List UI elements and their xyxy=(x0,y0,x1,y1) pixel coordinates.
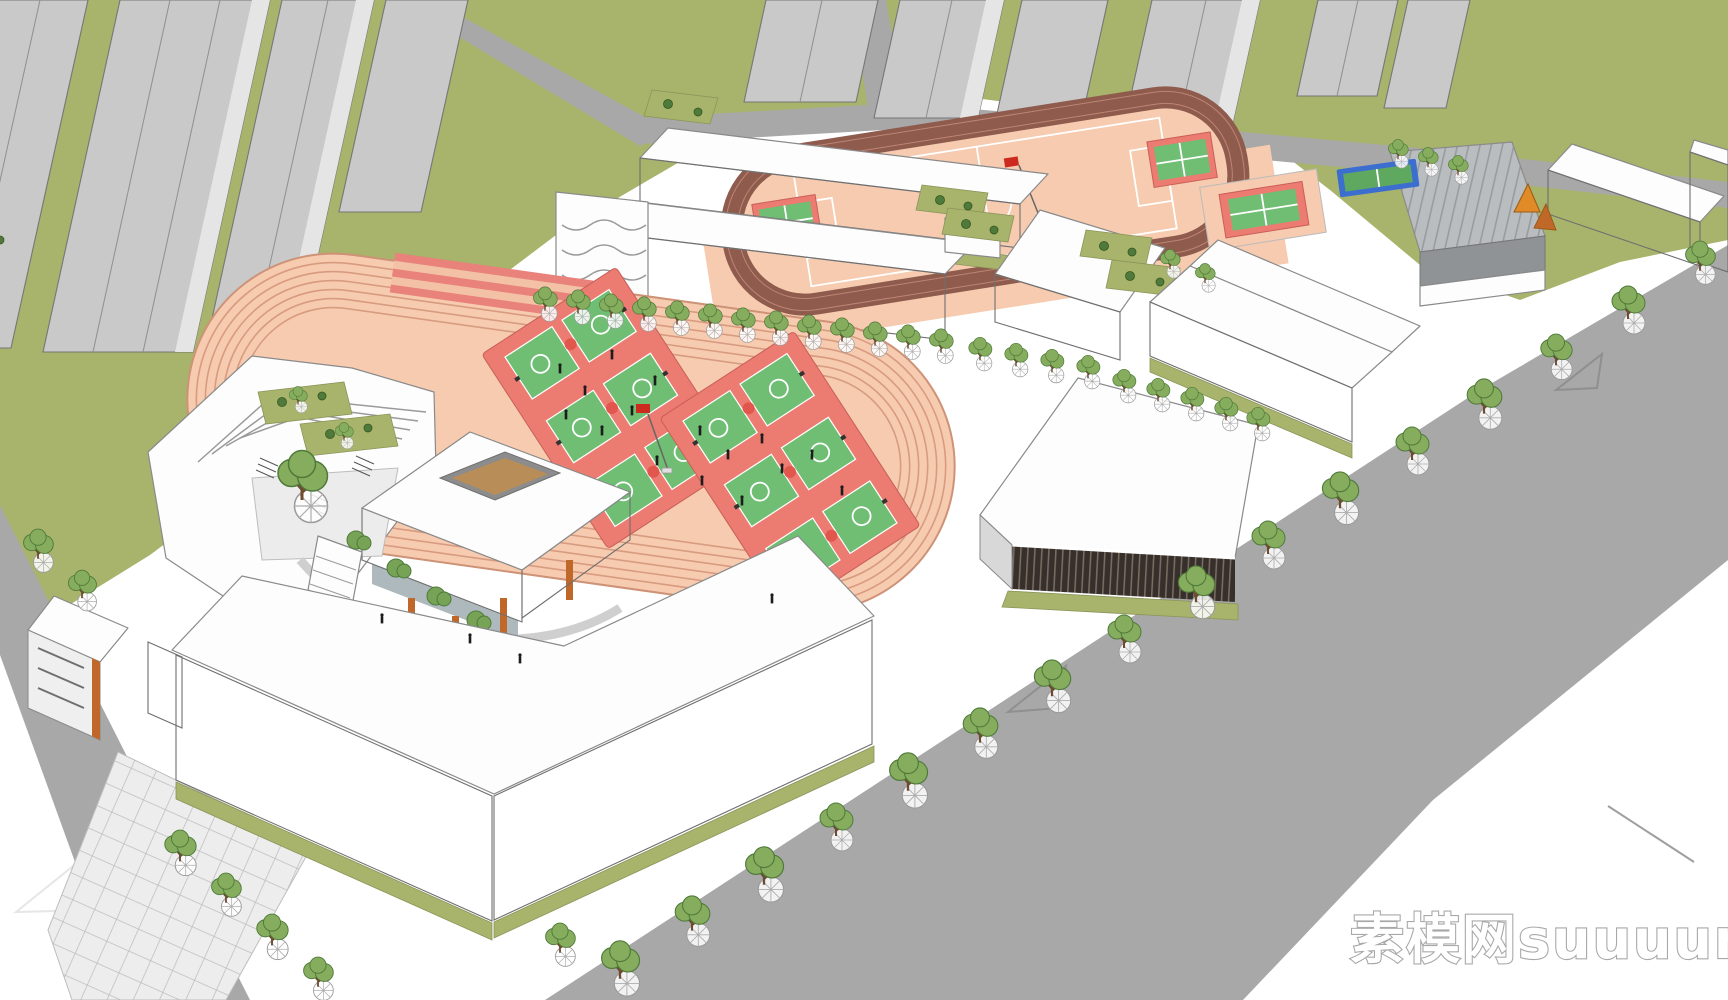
mini-basketball-court xyxy=(1147,132,1217,187)
watermark-text: 素模网suuuum.com xyxy=(1350,908,1728,971)
campus-scene: 素模网suuuum.com xyxy=(0,0,1728,1000)
architectural-rendering: 素模网suuuum.com xyxy=(0,0,1728,1000)
